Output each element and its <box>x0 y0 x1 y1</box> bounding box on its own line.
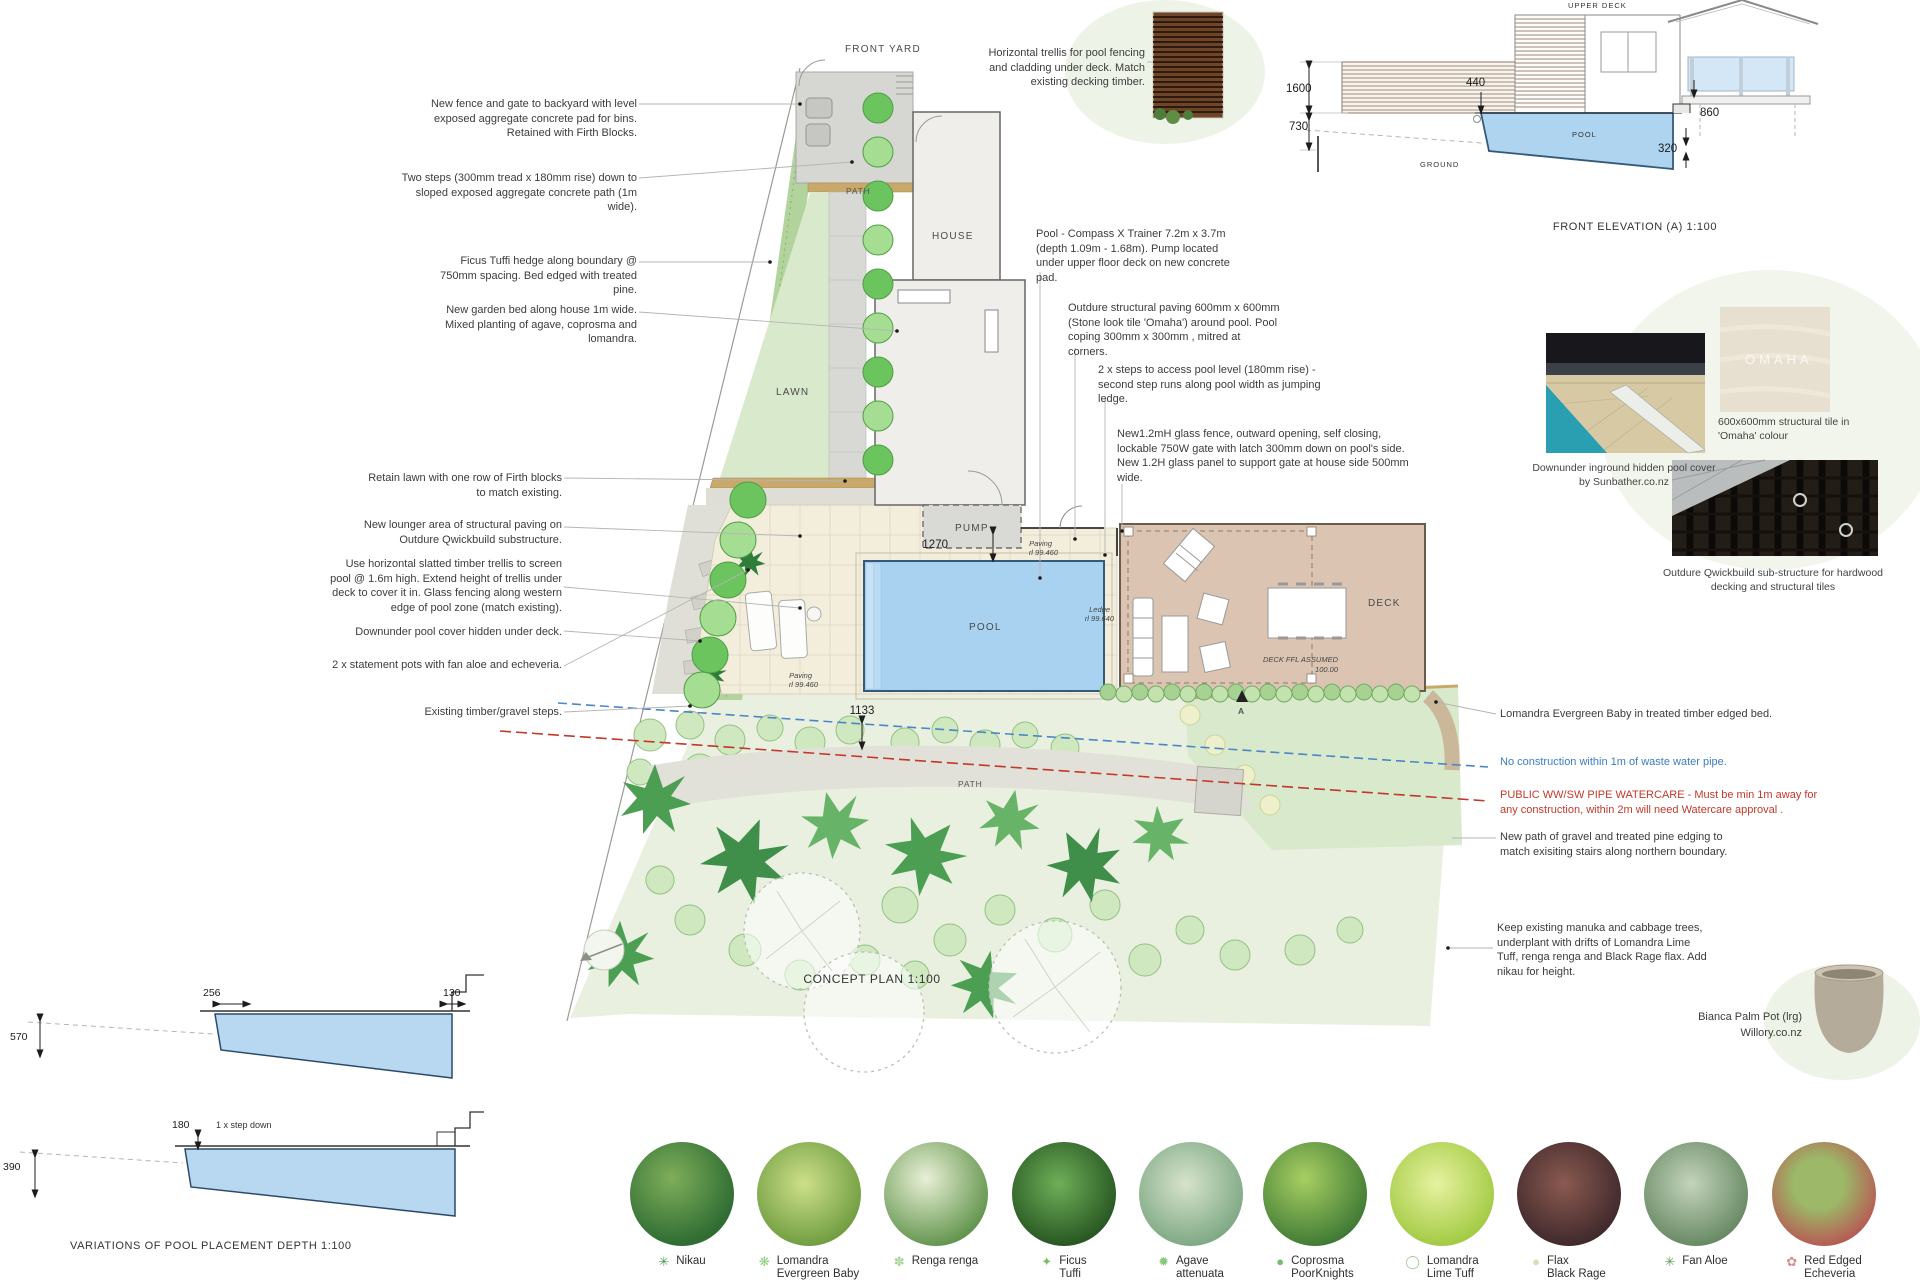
annotation-keep-manuka: Keep existing manuka and cabbage trees, … <box>1497 921 1709 980</box>
pump-label: PUMP <box>955 523 989 534</box>
annotation-new-fence: New fence and gate to backyard with leve… <box>407 97 637 141</box>
window <box>898 290 950 303</box>
lomandra-lime-icon: ◯ <box>1405 1255 1420 1280</box>
pool-label: POOL <box>969 622 1002 633</box>
annotation-existing-steps: Existing timber/gravel steps. <box>395 705 562 720</box>
elev-pool-label: POOL <box>1572 130 1597 139</box>
annotation-two-steps: Two steps (300mm tread x 180mm rise) dow… <box>400 171 637 215</box>
renga-renga-icon: ✽ <box>894 1255 905 1268</box>
legend-item-ficus: ✦ FicusTuffi <box>999 1142 1129 1280</box>
paving2-level-value: rl 99.460 <box>789 680 819 689</box>
nikau-photo <box>630 1142 734 1246</box>
paving-level-value: rl 99.460 <box>1029 548 1059 557</box>
annotation-horizontal-trellis: Horizontal trellis for pool fencing and … <box>985 46 1145 90</box>
paved-pad <box>1194 766 1243 815</box>
annotation-public-pipe: PUBLIC WW/SW PIPE WATERCARE - Must be mi… <box>1500 788 1830 817</box>
annotation-statement-pots: 2 x statement pots with fan aloe and ech… <box>320 658 562 673</box>
bin-pad <box>806 98 832 118</box>
nikau-icon: ✳ <box>658 1255 669 1268</box>
front-elevation-title: FRONT ELEVATION (A) 1:100 <box>1535 220 1735 235</box>
path-label-lower: PATH <box>958 779 983 789</box>
sect-dim-180: 180 <box>172 1119 190 1131</box>
lawn-label: LAWN <box>776 387 809 398</box>
legend-item-agave: ✹ Agaveattenuata <box>1126 1142 1256 1280</box>
sect-dim-256: 256 <box>203 987 221 999</box>
ledge-level-label: Ledge <box>1089 605 1110 614</box>
annotation-glass-fence: New1.2mH glass fence, outward opening, s… <box>1117 427 1409 486</box>
deck-ffl-value: 100.00 <box>1315 665 1339 674</box>
pool-step <box>866 563 874 689</box>
legend-name: Lomandra <box>777 1255 829 1267</box>
legend-name: Nikau <box>676 1255 705 1267</box>
front-elevation <box>1300 0 1818 172</box>
deck-ffl-label: DECK FFL ASSUMED <box>1263 655 1339 664</box>
deck-label: DECK <box>1368 598 1401 609</box>
dim-1270: 1270 <box>922 539 948 551</box>
elev-dim-1600: 1600 <box>1286 83 1312 95</box>
echeveria-icon: ✿ <box>1786 1255 1797 1280</box>
plan-graphics: FRONT YARD PATH HOUSE LAWN PUMP POOL DEC… <box>0 0 1920 1280</box>
annotation-pool-spec: Pool - Compass X Trainer 7.2m x 3.7m (de… <box>1036 227 1248 286</box>
ficus-icon: ✦ <box>1041 1255 1052 1280</box>
legend-item-flax: ● FlaxBlack Rage <box>1504 1142 1634 1280</box>
window <box>985 310 998 352</box>
legend-item-echeveria: ✿ Red EdgedEcheveria <box>1759 1142 1889 1280</box>
paving2-level-label: Paving <box>789 671 813 680</box>
ficus-hedge-column <box>863 93 893 475</box>
annotation-outdure-paving: Outdure structural paving 600mm x 600mm … <box>1068 301 1282 360</box>
house-lower <box>875 280 1025 505</box>
section-a-label: A <box>1238 706 1245 716</box>
annotation-lounger-area: New lounger area of structural paving on… <box>360 518 562 547</box>
agave-photo <box>1139 1142 1243 1246</box>
flax-photo <box>1517 1142 1621 1246</box>
pool-section-1 <box>28 975 484 1078</box>
legend-name: Renga renga <box>912 1255 979 1267</box>
pool-jumping-ledge <box>874 563 881 689</box>
sect-dim-390: 390 <box>3 1161 21 1173</box>
dim-1133: 1133 <box>850 705 875 717</box>
concept-plan-title: CONCEPT PLAN 1:100 <box>772 971 972 987</box>
fan-aloe-photo <box>1644 1142 1748 1246</box>
lomandra-lime-photo <box>1390 1142 1494 1246</box>
house-upper <box>913 112 1000 280</box>
side-table <box>807 607 821 621</box>
ficus-photo <box>1012 1142 1116 1246</box>
legend-name: Coprosma <box>1291 1255 1344 1267</box>
echeveria-photo <box>1772 1142 1876 1246</box>
annotation-waste-water-pipe: No construction within 1m of waste water… <box>1500 755 1800 770</box>
annotation-ficus-hedge: Ficus Tuffi hedge along boundary @ 750mm… <box>430 254 637 298</box>
sect-dim-130: 130 <box>443 987 461 999</box>
gate-swing-arc <box>1060 506 1082 528</box>
annotation-timber-trellis: Use horizontal slatted timber trellis to… <box>330 557 562 616</box>
caption-pot-line1: Bianca Palm Pot (lrg) <box>1650 1010 1802 1025</box>
caption-pot-line2: Willory.co.nz <box>1650 1026 1802 1041</box>
legend-item-renga-renga: ✽ Renga renga <box>871 1142 1001 1268</box>
variations-title: VARIATIONS OF POOL PLACEMENT DEPTH 1:100 <box>70 1239 410 1254</box>
sect-step-note: 1 x step down <box>216 1120 272 1130</box>
trellis-photo <box>1153 12 1223 124</box>
lomandra-eb-icon: ❋ <box>759 1255 770 1280</box>
elev-dim-860: 860 <box>1700 107 1719 119</box>
upper-deck-label: UPPER DECK <box>1568 1 1627 10</box>
legend-name: Fan Aloe <box>1682 1255 1727 1267</box>
lawn-area <box>720 193 829 478</box>
house-label: HOUSE <box>932 231 974 242</box>
downunder-cover-photo <box>1546 333 1705 453</box>
annotation-pool-cover: Downunder pool cover hidden under deck. <box>330 625 562 640</box>
fan-aloe-icon: ✳ <box>1664 1255 1675 1268</box>
legend-name: Agave <box>1176 1255 1209 1267</box>
annotation-retain-lawn: Retain lawn with one row of Firth blocks… <box>360 471 562 500</box>
annotation-lomandra-bed: Lomandra Evergreen Baby in treated timbe… <box>1500 707 1800 722</box>
annotation-pool-steps: 2 x steps to access pool level (180mm ri… <box>1098 363 1330 407</box>
annotation-garden-bed: New garden bed along house 1m wide. Mixe… <box>415 303 637 347</box>
caption-downunder: Downunder inground hidden pool cover by … <box>1528 461 1720 489</box>
path-label-top: PATH <box>846 186 871 196</box>
legend-item-fan-aloe: ✳ Fan Aloe <box>1631 1142 1761 1268</box>
annotation-new-path: New path of gravel and treated pine edgi… <box>1500 830 1750 859</box>
caption-qwickbuild: Outdure Qwickbuild sub-structure for har… <box>1655 566 1891 594</box>
elev-dim-320: 320 <box>1658 143 1677 155</box>
caption-omaha-tile: 600x600mm structural tile in 'Omaha' col… <box>1718 415 1876 443</box>
legend-item-coprosma: ● CoprosmaPoorKnights <box>1250 1142 1380 1280</box>
lounger <box>745 591 777 651</box>
elev-dim-730: 730 <box>1289 121 1308 133</box>
lomandra-eb-photo <box>757 1142 861 1246</box>
agave-icon: ✹ <box>1158 1255 1169 1280</box>
coprosma-icon: ● <box>1276 1255 1284 1280</box>
coprosma-photo <box>1263 1142 1367 1246</box>
legend-item-lomandra-lime: ◯ LomandraLime Tuff <box>1377 1142 1507 1280</box>
legend-name: Lomandra <box>1427 1255 1479 1267</box>
north-arrow-icon <box>580 930 624 970</box>
legend-name: Ficus <box>1059 1255 1086 1267</box>
elev-ground-label: GROUND <box>1420 160 1459 169</box>
legend-name: Red Edged <box>1804 1255 1862 1267</box>
sect-dim-570: 570 <box>10 1031 28 1043</box>
ledge-level-value: rl 99.640 <box>1085 614 1115 623</box>
legend-item-lomandra-eb: ❋ LomandraEvergreen Baby <box>744 1142 874 1280</box>
renga-renga-photo <box>884 1142 988 1246</box>
legend-name: Flax <box>1547 1255 1569 1267</box>
omaha-tile-text: OMAHA <box>1745 352 1813 367</box>
bin-pad <box>806 124 830 146</box>
paving-level-label: Paving <box>1029 539 1053 548</box>
lounger <box>779 599 808 658</box>
elev-dim-440: 440 <box>1466 77 1485 89</box>
legend-item-nikau: ✳ Nikau <box>617 1142 747 1268</box>
flax-icon: ● <box>1532 1255 1540 1280</box>
front-yard-label: FRONT YARD <box>845 44 921 55</box>
concept-plan-sheet: FRONT YARD PATH HOUSE LAWN PUMP POOL DEC… <box>0 0 1920 1280</box>
